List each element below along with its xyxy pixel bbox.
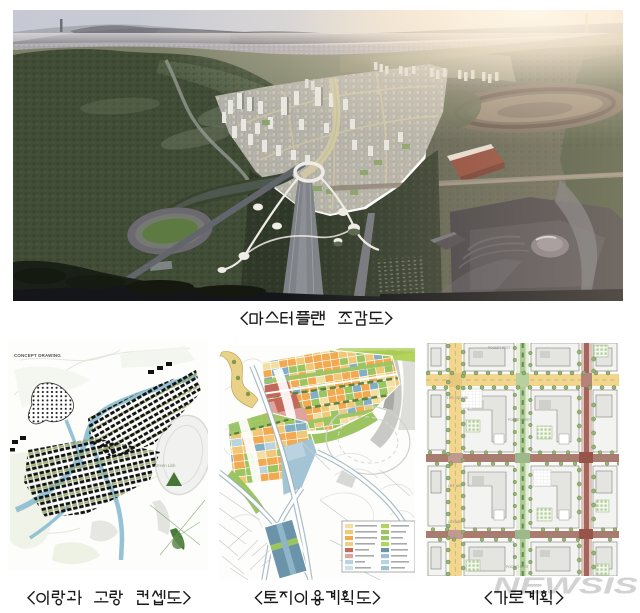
svg-text:LIFE SQUARE: LIFE SQUARE <box>447 396 468 400</box>
svg-text:COMMON STREET: COMMON STREET <box>484 457 512 461</box>
svg-text:POCKET REST: POCKET REST <box>488 346 510 350</box>
svg-text:LIFE WAY: LIFE WAY <box>448 484 463 488</box>
svg-text:COMMON: COMMON <box>428 457 444 461</box>
svg-text:POCKET REST: POCKET REST <box>508 418 530 422</box>
svg-text:CONCEPT DRAWING: CONCEPT DRAWING <box>14 353 61 358</box>
svg-text:Green Link: Green Link <box>155 463 176 468</box>
svg-text:LIFE WAY: LIFE WAY <box>448 520 463 524</box>
svg-text:COMMON: COMMON <box>428 534 444 538</box>
svg-text:POCKET REST: POCKET REST <box>506 565 528 569</box>
svg-text:COMMON ST: COMMON ST <box>596 457 616 461</box>
svg-text:COMMON STREET: COMMON STREET <box>545 457 573 461</box>
svg-text:COMMON ST: COMMON ST <box>596 534 616 538</box>
svg-text:COMMON STREET: COMMON STREET <box>545 534 573 538</box>
svg-text:COMMON STREET: COMMON STREET <box>484 534 512 538</box>
